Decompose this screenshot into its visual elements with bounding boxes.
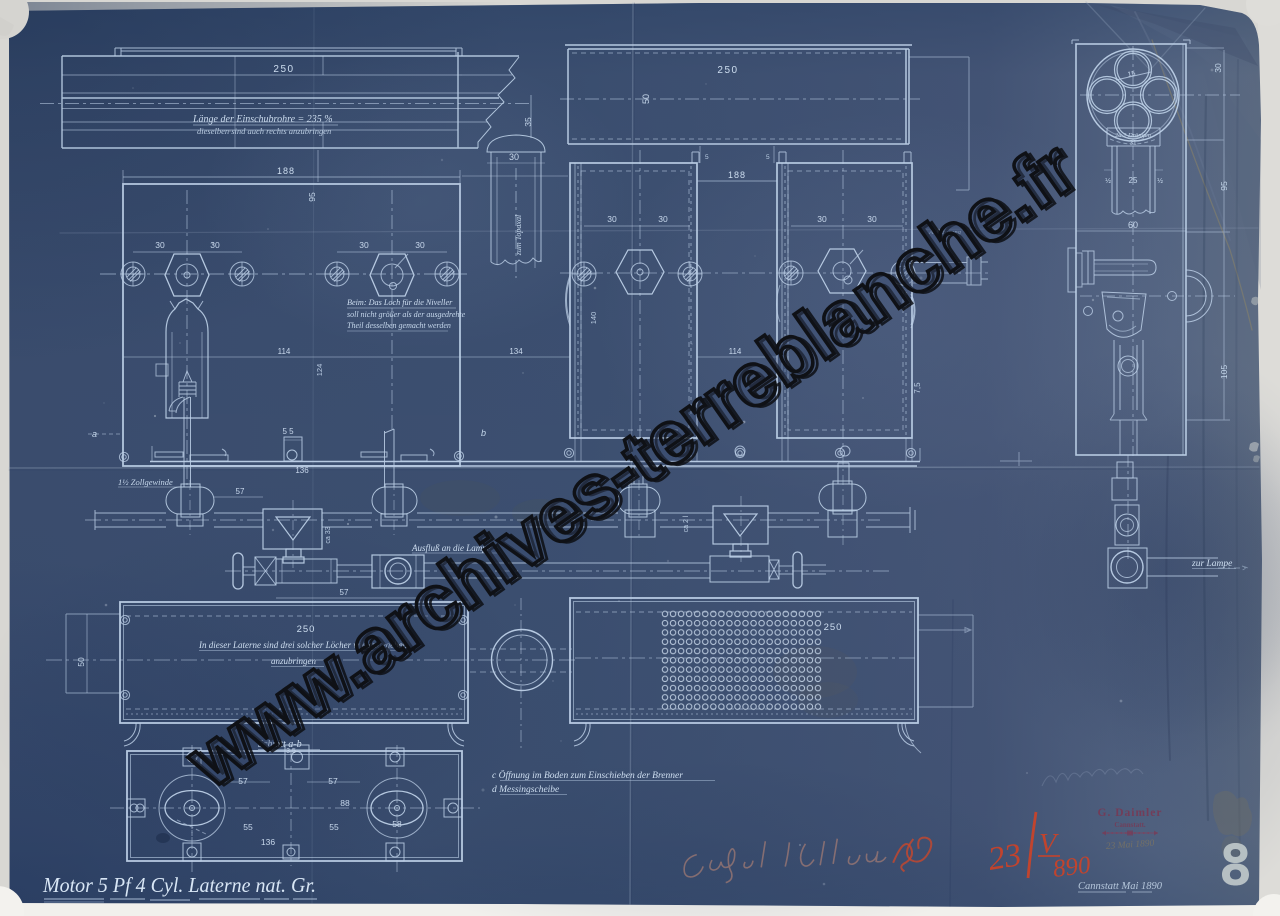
svg-text:30: 30 bbox=[867, 214, 877, 224]
svg-text:30: 30 bbox=[155, 240, 165, 250]
svg-text:140: 140 bbox=[589, 312, 598, 325]
svg-text:250: 250 bbox=[297, 624, 316, 635]
svg-text:250: 250 bbox=[717, 65, 738, 76]
svg-text:55: 55 bbox=[329, 822, 339, 832]
svg-text:188: 188 bbox=[728, 170, 746, 180]
svg-text:ca 2 l: ca 2 l bbox=[683, 515, 690, 532]
svg-text:30: 30 bbox=[359, 240, 369, 250]
svg-text:½: ½ bbox=[1157, 177, 1163, 185]
svg-text:30: 30 bbox=[509, 152, 519, 162]
svg-text:30: 30 bbox=[817, 214, 827, 224]
svg-text:Cannstatt Mai 1890: Cannstatt Mai 1890 bbox=[1078, 881, 1163, 892]
svg-text:57: 57 bbox=[328, 776, 338, 786]
svg-text:c Öffnung im Boden zum Einsch: c Öffnung im Boden zum Einschieben der B… bbox=[492, 769, 683, 781]
svg-text:60: 60 bbox=[1128, 220, 1138, 230]
svg-text:890: 890 bbox=[1051, 852, 1092, 883]
svg-text:95: 95 bbox=[1219, 181, 1229, 191]
svg-text:30: 30 bbox=[658, 214, 668, 224]
svg-text:58: 58 bbox=[392, 819, 402, 829]
svg-text:114: 114 bbox=[278, 347, 291, 356]
svg-text:Theil desselben gemacht werden: Theil desselben gemacht werden bbox=[347, 321, 451, 330]
svg-text:250: 250 bbox=[273, 64, 294, 75]
svg-text:250: 250 bbox=[824, 622, 843, 633]
svg-text:5: 5 bbox=[705, 154, 709, 161]
svg-text:50: 50 bbox=[641, 94, 651, 104]
svg-text:b: b bbox=[481, 428, 486, 438]
svg-text:23: 23 bbox=[986, 837, 1024, 878]
svg-text:31: 31 bbox=[1129, 140, 1137, 147]
svg-text:G. Daimler: G. Daimler bbox=[1098, 807, 1163, 819]
svg-text:136: 136 bbox=[295, 466, 309, 475]
svg-text:57: 57 bbox=[236, 487, 245, 496]
svg-text:Cannstatt.: Cannstatt. bbox=[1114, 821, 1146, 829]
svg-text:50: 50 bbox=[76, 657, 86, 667]
svg-text:Beim: Das Loch für die Nivelle: Beim: Das Loch für die Niveller bbox=[347, 298, 453, 307]
svg-text:7,5: 7,5 bbox=[913, 382, 922, 394]
svg-text:5: 5 bbox=[766, 154, 770, 161]
svg-text:88: 88 bbox=[340, 798, 350, 808]
svg-text:5 5: 5 5 bbox=[282, 427, 294, 436]
svg-text:dieselben sind auch rechts anz: dieselben sind auch rechts anzubringen bbox=[197, 126, 331, 136]
svg-text:30: 30 bbox=[210, 240, 220, 250]
svg-text:zur Lampe: zur Lampe bbox=[1191, 559, 1232, 569]
svg-text:soll nicht größer als der ausg: soll nicht größer als der ausgedrehte bbox=[347, 310, 466, 319]
svg-text:Motor 5 Pf 4 Cyl. Laterne nat: Motor 5 Pf 4 Cyl. Laterne nat. Gr. bbox=[42, 873, 316, 897]
svg-text:d Messingscheibe: d Messingscheibe bbox=[492, 785, 559, 795]
svg-text:105: 105 bbox=[1219, 365, 1229, 379]
svg-text:136: 136 bbox=[261, 837, 275, 847]
svg-text:Länge der Einschubrohre = 235: Länge der Einschubrohre = 235 % bbox=[192, 114, 333, 125]
svg-text:1½ Zollgewinde: 1½ Zollgewinde bbox=[118, 477, 173, 487]
svg-text:55: 55 bbox=[243, 822, 253, 832]
svg-text:134: 134 bbox=[509, 347, 523, 356]
svg-text:zum Topaxal: zum Topaxal bbox=[514, 214, 523, 256]
svg-text:½: ½ bbox=[1105, 177, 1111, 185]
svg-text:30: 30 bbox=[1213, 63, 1223, 73]
svg-text:124: 124 bbox=[315, 364, 324, 377]
svg-text:188: 188 bbox=[277, 166, 295, 176]
svg-text:30: 30 bbox=[415, 240, 425, 250]
svg-text:25: 25 bbox=[1129, 176, 1138, 185]
svg-text:2a 2 Drüngen: 2a 2 Drüngen bbox=[1115, 132, 1151, 139]
svg-text:ca 33: ca 33 bbox=[325, 526, 332, 543]
svg-text:30: 30 bbox=[607, 214, 617, 224]
svg-text:35: 35 bbox=[523, 117, 533, 127]
svg-text:57: 57 bbox=[340, 588, 349, 597]
svg-text:95: 95 bbox=[307, 192, 317, 202]
